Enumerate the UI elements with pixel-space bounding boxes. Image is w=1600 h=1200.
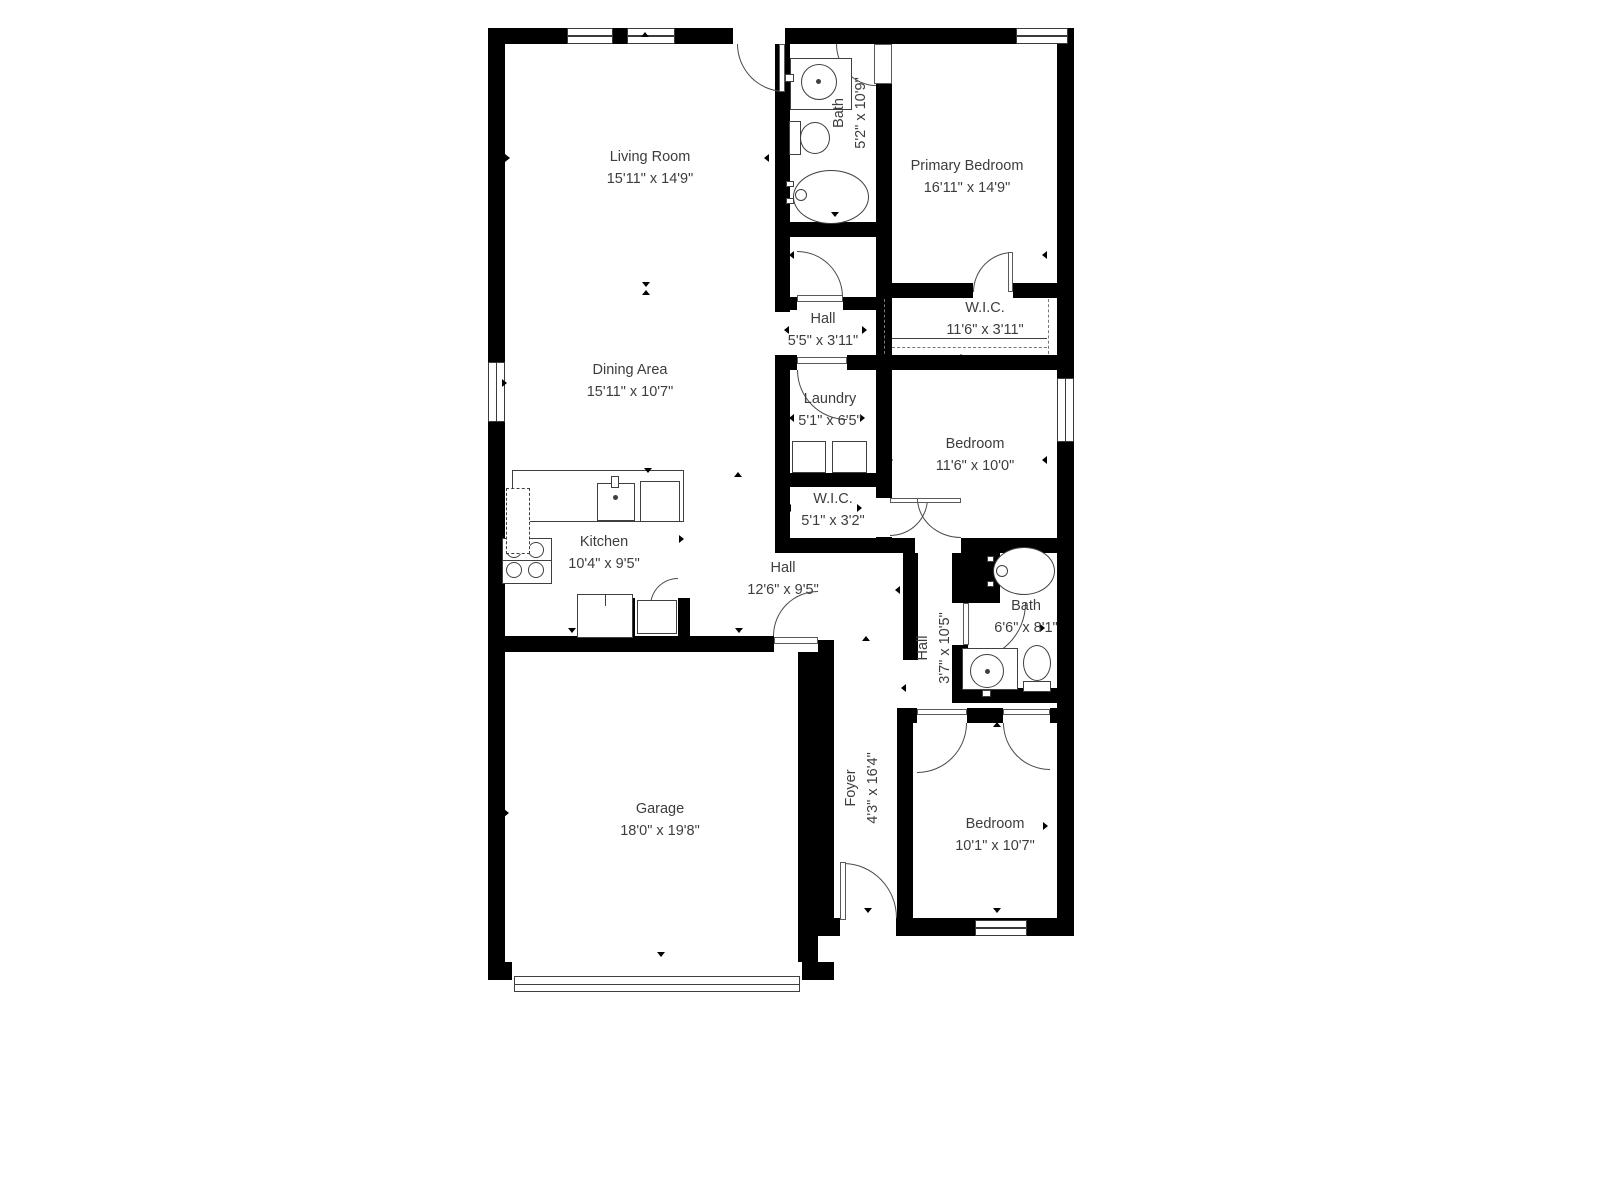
fixture-dot xyxy=(613,495,618,500)
room-name: Kitchen xyxy=(568,531,639,553)
dimension-marker xyxy=(505,154,510,162)
fixture-rect xyxy=(785,74,794,82)
dimension-marker xyxy=(641,32,649,37)
room-name: Laundry xyxy=(798,388,861,410)
room-dimensions: 18'0" x 19'8" xyxy=(620,820,700,842)
door-swing-arc xyxy=(973,252,1013,292)
room-dimensions: 5'2" x 10'9" xyxy=(850,77,872,148)
room-name: Hall xyxy=(912,612,934,683)
dimension-marker xyxy=(764,154,769,162)
wall xyxy=(798,652,818,962)
room-label-hall: Hall5'5" x 3'11" xyxy=(788,308,858,352)
room-label-hall: Hall12'6" x 9'5" xyxy=(747,557,818,601)
dimension-marker xyxy=(979,538,987,543)
dimension-marker xyxy=(735,628,743,633)
room-name: W.I.C. xyxy=(946,297,1023,319)
door-opening xyxy=(733,28,785,44)
dimension-marker xyxy=(814,809,819,817)
door-swing-arc xyxy=(917,723,967,773)
door-swing-arc xyxy=(797,251,843,297)
fixture-circle xyxy=(996,565,1008,577)
dimension-marker xyxy=(502,379,507,387)
dimension-marker xyxy=(895,586,900,594)
room-name: Hall xyxy=(788,308,858,330)
fixture-line xyxy=(1048,299,1049,354)
room-name: Primary Bedroom xyxy=(911,155,1024,177)
room-dimensions: 15'11" x 14'9" xyxy=(607,168,694,190)
window xyxy=(567,28,613,44)
window xyxy=(627,28,675,44)
room-dimensions: 4'3" x 16'4" xyxy=(862,752,884,823)
window xyxy=(1016,28,1068,44)
room-dimensions: 16'11" x 14'9" xyxy=(911,177,1024,199)
fixture-circle xyxy=(528,542,544,558)
fixture-rect xyxy=(792,441,826,473)
fixture-circle xyxy=(528,562,544,578)
dimension-marker xyxy=(642,290,650,295)
dimension-marker xyxy=(642,282,650,287)
room-dimensions: 5'1" x 6'5" xyxy=(798,410,861,432)
room-label-w-i-c: W.I.C.11'6" x 3'11" xyxy=(946,297,1023,341)
room-name: Living Room xyxy=(607,146,694,168)
dimension-marker xyxy=(644,468,652,473)
fixture-rect xyxy=(987,581,994,587)
fixture-line xyxy=(514,984,800,985)
room-label-bedroom: Bedroom10'1" x 10'7" xyxy=(955,813,1035,857)
dimension-marker xyxy=(957,288,965,293)
fixture-line xyxy=(605,594,606,606)
room-dimensions: 15'11" x 10'7" xyxy=(587,381,674,403)
dimension-marker xyxy=(888,456,893,464)
door-leaf xyxy=(917,709,967,715)
fixture-circle xyxy=(506,562,522,578)
dimension-marker xyxy=(1043,822,1048,830)
dimension-marker xyxy=(679,535,684,543)
room-label-w-i-c: W.I.C.5'1" x 3'2" xyxy=(801,488,864,532)
dimension-marker xyxy=(831,212,839,217)
room-name: W.I.C. xyxy=(801,488,864,510)
dimension-marker xyxy=(657,640,665,645)
fixture-rect xyxy=(506,488,530,554)
dimension-marker xyxy=(657,952,665,957)
room-label-bedroom: Bedroom11'6" x 10'0" xyxy=(936,433,1014,477)
fixture-line xyxy=(892,347,1047,348)
room-dimensions: 5'5" x 3'11" xyxy=(788,330,858,352)
wall xyxy=(488,28,505,980)
room-name: Bath xyxy=(828,77,850,148)
wall xyxy=(775,222,892,237)
fixture-rect xyxy=(786,181,794,187)
dimension-marker xyxy=(1042,456,1047,464)
dimension-marker xyxy=(789,251,794,259)
door-leaf xyxy=(1008,252,1013,292)
window xyxy=(488,362,505,422)
room-label-laundry: Laundry5'1" x 6'5" xyxy=(798,388,861,432)
fixture-line xyxy=(502,560,552,561)
wall xyxy=(876,283,1057,298)
floor-plan: Living Room15'11" x 14'9"Bath5'2" x 10'9… xyxy=(0,0,1600,1200)
room-dimensions: 3'7" x 10'5" xyxy=(934,612,956,683)
wall xyxy=(775,370,790,545)
window xyxy=(1057,378,1074,442)
fixture-dot xyxy=(985,669,990,674)
door-leaf xyxy=(874,44,892,84)
dimension-marker xyxy=(786,504,791,512)
fixture-ellipse xyxy=(800,122,830,154)
room-name: Bedroom xyxy=(936,433,1014,455)
fixture-rect xyxy=(987,556,994,562)
room-label-dining-area: Dining Area15'11" x 10'7" xyxy=(587,359,674,403)
room-name: Garage xyxy=(620,798,700,820)
door-swing-arc xyxy=(917,498,961,538)
wall xyxy=(897,708,913,920)
dimension-marker xyxy=(504,809,509,817)
dimension-marker xyxy=(1042,251,1047,259)
room-label-primary-bedroom: Primary Bedroom16'11" x 14'9" xyxy=(911,155,1024,199)
door-opening xyxy=(840,918,896,936)
door-leaf xyxy=(840,862,846,920)
room-dimensions: 11'6" x 3'11" xyxy=(946,319,1023,341)
fixture-rect xyxy=(640,481,680,522)
wall xyxy=(1057,28,1074,936)
door-leaf xyxy=(963,603,969,645)
room-label-garage: Garage18'0" x 19'8" xyxy=(620,798,700,842)
floorplan-page: Living Room15'11" x 14'9"Bath5'2" x 10'9… xyxy=(0,0,1600,1200)
dimension-marker xyxy=(993,722,1001,727)
fixture-ellipse xyxy=(1023,645,1051,681)
fixture-rect xyxy=(832,441,867,473)
door-swing-arc xyxy=(1003,723,1050,770)
fixture-rect xyxy=(1023,681,1051,692)
room-name: Hall xyxy=(747,557,818,579)
room-label-bath: Bath5'2" x 10'9" xyxy=(828,77,872,148)
door-leaf xyxy=(1003,709,1050,715)
room-dimensions: 10'4" x 9'5" xyxy=(568,553,639,575)
dimension-marker xyxy=(993,908,1001,913)
wall xyxy=(678,598,690,636)
door-swing-arc xyxy=(737,44,785,92)
room-dimensions: 12'6" x 9'5" xyxy=(747,579,818,601)
window xyxy=(975,920,1027,936)
dimension-marker xyxy=(957,354,965,359)
room-name: Bedroom xyxy=(955,813,1035,835)
room-name: Foyer xyxy=(840,752,862,823)
room-label-foyer: Foyer4'3" x 16'4" xyxy=(840,752,884,823)
door-opening xyxy=(915,538,961,553)
fixture-dot xyxy=(816,79,821,84)
dimension-marker xyxy=(734,472,742,477)
room-label-living-room: Living Room15'11" x 14'9" xyxy=(607,146,694,190)
door-leaf xyxy=(774,637,818,644)
dimension-marker xyxy=(905,822,910,830)
door-leaf xyxy=(797,357,847,364)
dimension-marker xyxy=(864,908,872,913)
fixture-rect xyxy=(597,483,635,521)
dimension-marker xyxy=(862,326,867,334)
room-dimensions: 5'1" x 3'2" xyxy=(801,510,864,532)
door-leaf xyxy=(797,295,843,302)
dimension-marker xyxy=(789,414,794,422)
fixture-rect xyxy=(637,600,677,634)
wall xyxy=(775,538,876,553)
room-name: Dining Area xyxy=(587,359,674,381)
door-leaf xyxy=(917,498,961,503)
door-leaf xyxy=(779,44,785,92)
dimension-marker xyxy=(901,684,906,692)
fixture-rect xyxy=(786,198,794,204)
fixture-rect xyxy=(982,690,991,697)
wall xyxy=(775,473,892,487)
dimension-marker xyxy=(568,628,576,633)
dimension-marker xyxy=(983,31,991,36)
fixture-circle xyxy=(795,189,807,201)
dimension-marker xyxy=(862,636,870,641)
room-name: Bath xyxy=(994,595,1057,617)
room-label-bath: Bath6'6" x 8'1" xyxy=(994,595,1057,639)
fixture-line xyxy=(884,299,885,354)
room-dimensions: 11'6" x 10'0" xyxy=(936,455,1014,477)
room-label-hall: Hall3'7" x 10'5" xyxy=(912,612,956,683)
wall xyxy=(818,640,834,920)
room-label-kitchen: Kitchen10'4" x 9'5" xyxy=(568,531,639,575)
room-dimensions: 6'6" x 8'1" xyxy=(994,617,1057,639)
fixture-rect xyxy=(611,476,619,488)
room-dimensions: 10'1" x 10'7" xyxy=(955,835,1035,857)
